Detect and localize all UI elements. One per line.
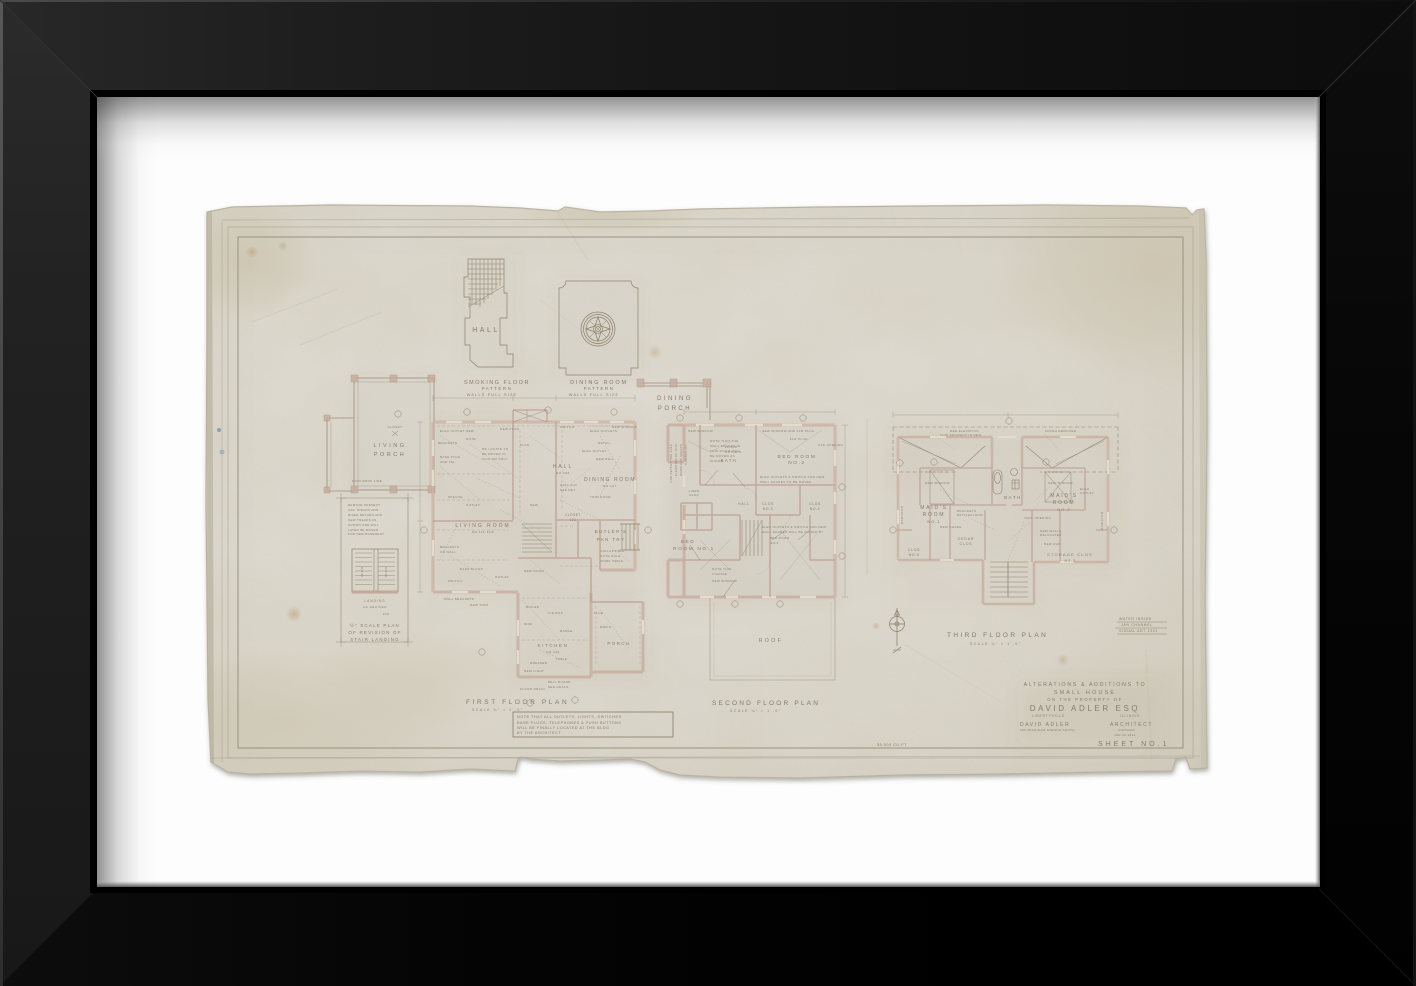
svg-text:NO.2: NO.2 [1057,507,1070,512]
svg-text:NUMBER 257: NUMBER 257 [684,444,688,465]
svg-text:REMOVE PRESENT: REMOVE PRESENT [348,503,380,507]
svg-text:NEW DOOR: NEW DOOR [524,569,544,573]
svg-text:BE MOVED IN: BE MOVED IN [482,452,506,456]
svg-text:RANGE: RANGE [560,629,573,633]
svg-text:NO.5: NO.5 [909,553,920,557]
svg-text:TANK OPENING: TANK OPENING [1024,516,1052,520]
svg-text:ROOF: ROOF [759,638,783,644]
svg-text:JAN 12,1921: JAN 12,1921 [1114,733,1136,737]
svg-text:650 MICHIGAN AVENUE SOUTH: 650 MICHIGAN AVENUE SOUTH [1020,728,1075,732]
svg-text:SCALE ¼" = 1'-0": SCALE ¼" = 1'-0" [472,708,524,712]
svg-text:OF REVISION OF: OF REVISION OF [348,630,401,635]
svg-text:121: 121 [570,518,577,522]
svg-text:FINISH REMOVED: FINISH REMOVED [1045,429,1077,433]
svg-text:PATTERN: PATTERN [584,386,615,391]
svg-text:BY THE ARCHITECT: BY THE ARCHITECT [517,731,561,735]
svg-text:DINING ROOM: DINING ROOM [584,477,636,483]
svg-text:OAK TREADS AND: OAK TREADS AND [348,508,379,512]
svg-text:BED ROOM: BED ROOM [778,454,817,460]
svg-text:SWITCH: SWITCH [448,579,462,583]
svg-text:PLAN: PLAN [520,443,529,447]
svg-text:DRESSER: DRESSER [530,661,548,665]
svg-text:PORCH: PORCH [658,406,692,412]
svg-text:NO.1: NO.1 [927,519,940,524]
svg-text:NOTE: NOTE [466,437,476,441]
svg-text:NO.111 FLR: NO.111 FLR [472,530,495,534]
svg-text:SHOWN: SHOWN [710,459,724,463]
svg-text:NEW LIGHT: NEW LIGHT [524,669,544,673]
svg-text:NEW PLUG: NEW PLUG [500,427,519,431]
svg-text:MAID'S: MAID'S [1050,493,1078,499]
svg-text:WALL SHADES TO BE MOVED: WALL SHADES TO BE MOVED [760,480,812,484]
svg-text:ROOM FOR SHEETS: ROOM FOR SHEETS [679,444,683,476]
svg-text:CLOS: CLOS [762,502,774,506]
svg-text:NOTE RULE: NOTE RULE [600,554,621,558]
svg-text:OUTLET: OUTLET [1080,491,1094,495]
svg-text:BED: BED [681,539,696,545]
svg-text:CHICAGO: CHICAGO [1118,728,1135,732]
svg-text:CLOS: CLOS [908,548,920,552]
svg-text:SMALL HOUSE: SMALL HOUSE [1054,690,1116,696]
svg-text:ILLINOIS: ILLINOIS [1120,714,1140,718]
svg-text:STORAGE CLOS: STORAGE CLOS [1047,552,1093,557]
svg-text:NOTE THAT ALL OUTLETS, LIGHTS,: NOTE THAT ALL OUTLETS, LIGHTS, SWITCHES [517,715,622,719]
svg-text:NEW WINDOW: NEW WINDOW [1048,481,1073,485]
svg-text:NO.2: NO.2 [1064,559,1075,563]
svg-text:KITCHEN: KITCHEN [538,643,569,648]
svg-text:STAIR LANDING: STAIR LANDING [350,637,400,642]
svg-text:BED ROOM: BED ROOM [770,536,790,540]
svg-text:CLOS: CLOS [960,542,973,546]
svg-text:TABLE: TABLE [556,657,567,661]
svg-text:NEW WINDOW: NEW WINDOW [688,429,713,433]
svg-text:THIRD FLOOR PLAN: THIRD FLOOR PLAN [947,632,1048,639]
svg-text:FLOOR: FLOOR [725,445,738,449]
svg-text:NO.4: NO.4 [810,507,820,511]
svg-text:OUTLET: OUTLET [466,503,480,507]
svg-text:NOTE THAT THE: NOTE THAT THE [710,439,739,443]
svg-text:AND TEL: AND TEL [440,460,455,464]
svg-text:WORK TABLE: WORK TABLE [600,559,623,563]
svg-text:WALLS FULL SIZE: WALLS FULL SIZE [569,393,619,397]
svg-text:BUTLER'S: BUTLER'S [595,529,628,534]
svg-text:SEE DETAIL: SEE DETAIL [548,685,569,689]
svg-text:THIS RM ONLY: THIS RM ONLY [482,457,508,461]
svg-text:FOR DETAILS SEE ELEV: FOR DETAILS SEE ELEV [669,444,673,482]
svg-text:NEW: NEW [530,503,538,507]
svg-text:LIVING ROOM: LIVING ROOM [455,523,510,529]
svg-text:RADIATOR: RADIATOR [900,505,904,524]
svg-text:NOTE THIS: NOTE THIS [712,567,732,571]
svg-text:BASE PLUGS, TELEPHONES & PUSH: BASE PLUGS, TELEPHONES & PUSH BUTTONS [517,721,621,725]
svg-text:SINK: SINK [524,622,533,626]
svg-text:COLLAPSIBLE: COLLAPSIBLE [600,549,625,553]
svg-text:WATER INSIDE: WATER INSIDE [1119,617,1152,621]
svg-text:SECOND FLOOR PLAN: SECOND FLOOR PLAN [712,700,820,707]
svg-text:LIBERTYVILLE: LIBERTYVILLE [1032,714,1065,718]
svg-text:SCALE ¼" = 1'-0": SCALE ¼" = 1'-0" [970,642,1022,646]
svg-text:SIGNAL ART 1921: SIGNAL ART 1921 [1119,629,1158,633]
svg-text:NO.3: NO.3 [763,507,773,511]
svg-text:OUTLETS: OUTLETS [725,450,742,454]
svg-text:CLOS: CLOS [689,493,699,497]
svg-text:HALL FLR: HALL FLR [560,483,578,487]
svg-text:FOR NEW BASEMENT: FOR NEW BASEMENT [348,532,384,536]
svg-text:WALLS FULL SIZE: WALLS FULL SIZE [467,393,517,397]
svg-text:MAID'S: MAID'S [920,505,948,511]
svg-text:JAN CHANNEL: JAN CHANNEL [1121,623,1153,627]
svg-text:CHANGE: CHANGE [712,572,727,576]
svg-text:ROOM: ROOM [1053,500,1076,506]
svg-text:SHOWN ONE WILL: SHOWN ONE WILL [348,523,379,527]
svg-text:FLOOR DRAIN: FLOOR DRAIN [520,687,545,691]
svg-text:PAN TRY: PAN TRY [597,537,626,542]
svg-text:OLD OPENING: OLD OPENING [818,443,844,447]
svg-text:MAIN ROOF LINE: MAIN ROOF LINE [352,479,382,483]
svg-text:PORCH: PORCH [374,452,406,458]
svg-text:THIS SEGMENT IS NEW: THIS SEGMENT IS NEW [940,433,982,437]
svg-text:NEW WINDOW: NEW WINDOW [612,425,637,429]
svg-text:ELEC OUTLET NEW: ELEC OUTLET NEW [440,429,474,433]
svg-text:35,000 CU.FT.: 35,000 CU.FT. [877,743,908,747]
svg-text:ROOM: ROOM [923,512,946,518]
svg-text:LANDING: LANDING [364,599,385,603]
svg-text:CLOSET: CLOSET [387,425,402,429]
svg-text:NO.120: NO.120 [546,650,559,654]
svg-text:249: 249 [383,612,390,616]
svg-text:ELEC OUTLETS: ELEC OUTLETS [590,429,617,433]
svg-text:ELEC OUTLETS & SWITCH FOR NEW: ELEC OUTLETS & SWITCH FOR NEW [760,475,825,479]
svg-text:NEW WINDOW: NEW WINDOW [712,579,737,583]
svg-text:NO.2: NO.2 [788,460,806,466]
svg-text:ELEVATION OF THIS: ELEVATION OF THIS [674,444,678,476]
svg-text:WALL SHADES WILL BE MOVED BY: WALL SHADES WILL BE MOVED BY [762,530,824,534]
svg-text:BASE PLUGS: BASE PLUGS [460,567,483,571]
svg-text:NEW TRIM: NEW TRIM [470,603,488,607]
svg-text:CLOS: CLOS [809,502,821,506]
svg-text:CEDAR: CEDAR [958,537,975,541]
svg-text:HALL: HALL [738,502,750,506]
svg-text:ALTERATIONS & ADDITIONS TO: ALTERATIONS & ADDITIONS TO [1024,682,1147,688]
svg-text:ROOM NO.1: ROOM NO.1 [673,546,715,552]
svg-text:BASE PLUG: BASE PLUG [440,455,461,459]
svg-text:NEW BELL: NEW BELL [596,457,614,461]
svg-text:UP 14 R: UP 14 R [360,567,364,578]
svg-text:SWITCH: SWITCH [560,425,574,429]
svg-text:BRACKETS: BRACKETS [440,545,459,549]
svg-text:FLR PLUG: FLR PLUG [790,437,808,441]
svg-text:NEW WINDOW: NEW WINDOW [925,481,950,485]
svg-text:OUTLET: OUTLET [495,575,509,579]
svg-text:NO.3: NO.3 [770,541,779,545]
svg-text:NEW SHADE: NEW SHADE [940,525,962,529]
svg-text:DRAIN: DRAIN [600,625,611,629]
svg-text:ON THE PROPERTY OF: ON THE PROPERTY OF [1047,697,1123,702]
svg-text:DAVID ADLER ESQ: DAVID ADLER ESQ [1030,704,1140,713]
svg-text:ICE BOX: ICE BOX [548,611,563,615]
svg-text:ELEC OUTLET: ELEC OUTLET [582,449,607,453]
svg-text:DETAIL: DETAIL [598,441,611,445]
svg-text:RADIATOR: RADIATOR [1100,511,1104,530]
svg-text:BE MOVED AS: BE MOVED AS [710,454,735,458]
svg-text:WALL BRACKETS: WALL BRACKETS [444,597,474,601]
svg-text:WILL BE FINALLY LOCATED AT THE: WILL BE FINALLY LOCATED AT THE BLDG [517,726,609,730]
svg-text:RELOCATED: RELOCATED [1040,533,1062,537]
svg-text:NEW RAD: NEW RAD [1044,542,1061,546]
svg-text:FIRST FLOOR PLAN: FIRST FLOOR PLAN [466,699,569,706]
svg-text:HALL: HALL [553,464,574,470]
svg-text:PORCH: PORCH [607,641,630,646]
svg-text:BOILER: BOILER [526,605,540,609]
svg-text:ELEC OUTLETS & SWITCH AND NEW: ELEC OUTLETS & SWITCH AND NEW [762,525,826,529]
svg-text:AS REVISED: AS REVISED [363,605,387,609]
svg-text:SPECIAL: SPECIAL [448,495,463,499]
svg-text:DINING: DINING [657,396,693,402]
svg-text:SEE DET: SEE DET [560,488,576,492]
svg-text:LIVING: LIVING [373,443,406,449]
svg-text:BATTLEFLOOR: BATTLEFLOOR [957,513,983,517]
svg-text:FLUE: FLUE [594,611,603,615]
svg-text:TRIM DOOR: TRIM DOOR [590,495,611,499]
svg-text:NEW TREADS AS: NEW TREADS AS [348,518,377,522]
svg-text:SHEET NO.1: SHEET NO.1 [1098,741,1170,748]
svg-text:BELL BOARD: BELL BOARD [548,680,571,684]
svg-text:NO.106: NO.106 [556,471,570,475]
svg-text:SCALE ¼" = 1'-0": SCALE ¼" = 1'-0" [730,709,782,713]
svg-text:ON WALL: ON WALL [440,550,456,554]
svg-text:½" SCALE PLAN: ½" SCALE PLAN [350,622,400,628]
svg-text:PATTERN: PATTERN [482,386,513,391]
svg-text:BATH: BATH [1004,495,1022,500]
svg-text:NEW WINDOW AND FLR PLUG: NEW WINDOW AND FLR PLUG [762,429,815,433]
svg-text:DN 14 R: DN 14 R [384,567,388,578]
svg-text:CLOSET: CLOSET [565,513,581,517]
svg-text:RISER RETURN AND: RISER RETURN AND [348,513,383,517]
svg-text:RE LOCATE TO: RE LOCATE TO [482,447,509,451]
